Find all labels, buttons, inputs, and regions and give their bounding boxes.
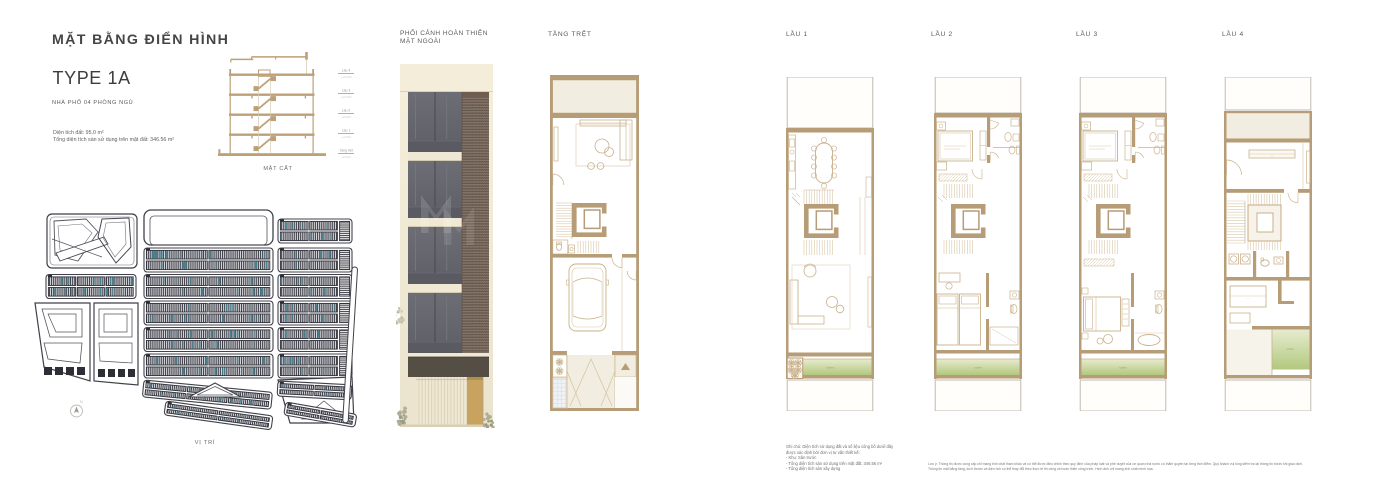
svg-text:vườn: vườn xyxy=(826,366,833,370)
svg-text:+12.000: +12.000 xyxy=(341,95,352,99)
svg-text:+8.000: +8.000 xyxy=(341,115,351,119)
svg-text:vườn: vườn xyxy=(1286,347,1293,351)
svg-text:+16.000: +16.000 xyxy=(341,75,352,79)
svg-text:+0.000: +0.000 xyxy=(341,155,351,159)
svg-text:~: ~ xyxy=(1247,297,1249,300)
svg-text:Tầng trệt: Tầng trệt xyxy=(339,149,353,153)
svg-text:vườn: vườn xyxy=(974,366,981,370)
svg-text:Lầu 4: Lầu 4 xyxy=(342,69,351,73)
svg-text:N: N xyxy=(80,400,83,404)
svg-text:vườn: vườn xyxy=(1119,366,1126,370)
svg-text:Lầu 3: Lầu 3 xyxy=(342,89,351,93)
svg-text:Lầu 2: Lầu 2 xyxy=(342,109,351,113)
svg-text:Lầu 1: Lầu 1 xyxy=(342,129,351,133)
svg-text:+4.000: +4.000 xyxy=(341,135,351,139)
